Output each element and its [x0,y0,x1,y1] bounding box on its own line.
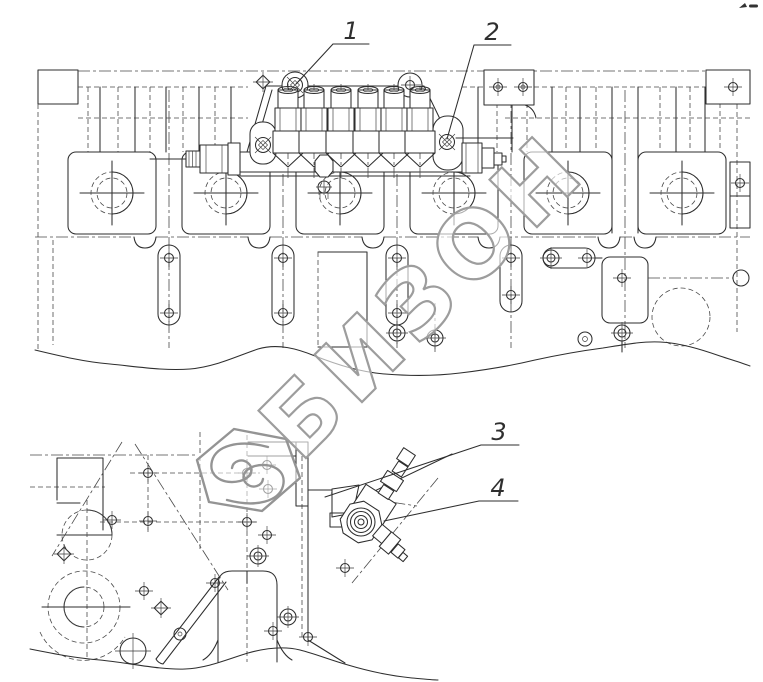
injection-pump-assembly [150,72,513,199]
callout-4: 4 [384,474,518,521]
parts-diagram: БИЗОН 1 2 3 4 [0,0,763,682]
callout-3-label: 3 [491,418,506,446]
scallop-notches [134,237,656,248]
callout-1-label: 1 [343,17,358,45]
corner-mark [739,3,758,8]
callout-4-label: 4 [490,474,505,502]
break-line-bottom-view [30,648,438,680]
top-mounting-plates [484,70,750,118]
callout-1: 1 [296,17,369,84]
hex-plug [315,155,333,199]
transfer-pump-assembly [330,448,452,583]
callout-2-label: 2 [484,18,499,46]
pump-drive-coupling [150,143,240,175]
block-corner-plate [38,70,78,104]
parts-diagram-page: БИЗОН 1 2 3 4 [0,0,763,682]
